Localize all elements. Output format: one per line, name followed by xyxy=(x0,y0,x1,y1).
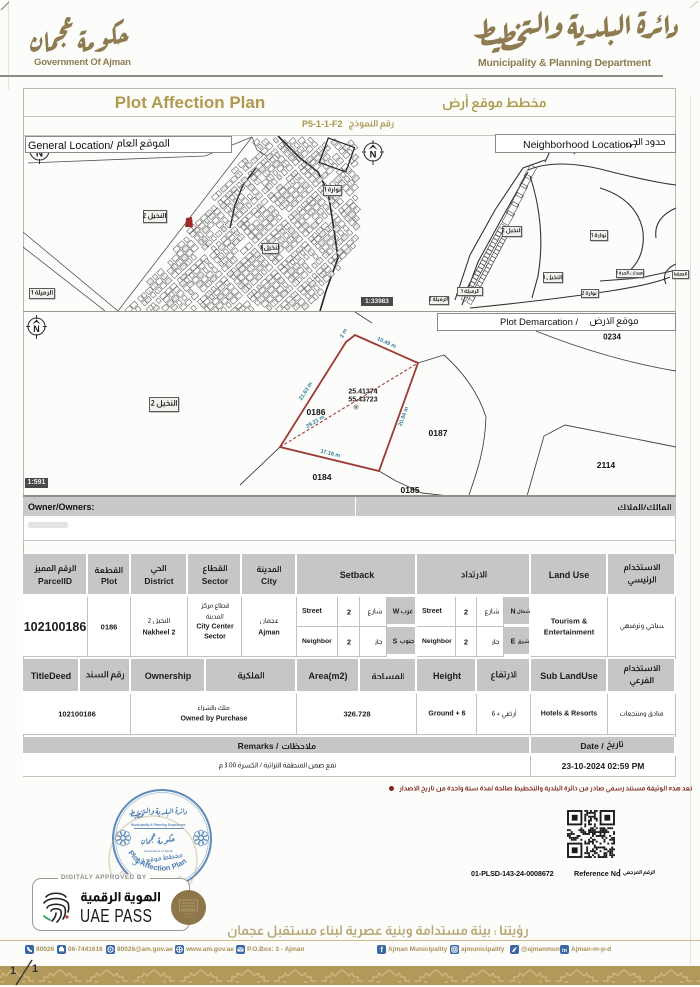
svg-text:N: N xyxy=(370,150,377,161)
svg-text:10.49 m: 10.49 m xyxy=(376,336,397,350)
svg-text:1: 1 xyxy=(10,965,16,977)
svg-text:2 m: 2 m xyxy=(339,328,349,339)
svg-text:in: in xyxy=(562,948,568,954)
svg-text:21.63 m: 21.63 m xyxy=(298,381,314,401)
svg-text:1: 1 xyxy=(32,963,38,975)
svg-text:N: N xyxy=(33,323,39,333)
svg-text:20.94 m: 20.94 m xyxy=(398,406,411,427)
